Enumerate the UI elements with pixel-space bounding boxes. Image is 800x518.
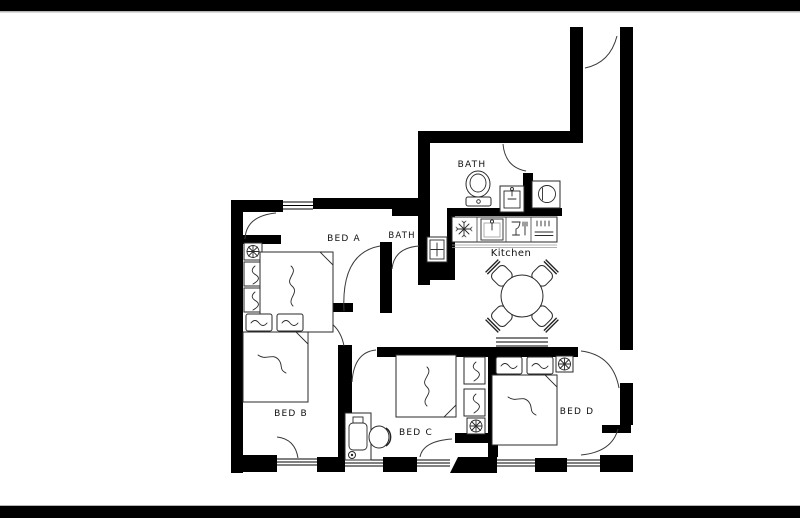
bed-d-room [492, 356, 573, 445]
washing-machine-icon [532, 181, 560, 208]
wall [383, 457, 417, 472]
ceiling-light-icon [244, 243, 262, 260]
bath-inner-label: BATH [388, 231, 415, 241]
wall [317, 457, 345, 472]
nightstand-lamp-icon [464, 389, 485, 416]
wall [418, 262, 455, 280]
bed-d-label: BED D [560, 407, 595, 417]
bottom-letterbox-bar [0, 506, 800, 518]
pillow-icon [496, 357, 522, 374]
wall [450, 457, 497, 473]
dining-table-icon [501, 275, 543, 317]
double-bed-icon [492, 375, 557, 445]
wall [600, 455, 633, 472]
bed-b-exterior-door-arc [277, 437, 298, 458]
washbasin-icon [427, 237, 447, 262]
bath-inner [427, 237, 447, 262]
window [567, 460, 600, 466]
nightstand-lamp-icon [464, 357, 485, 384]
wall [570, 27, 583, 131]
window [345, 460, 383, 466]
bed-d-door-arc [581, 351, 619, 388]
double-bed-icon [243, 332, 308, 402]
washbasin-icon [500, 186, 524, 212]
ceiling-light-icon [467, 418, 485, 434]
wall [602, 425, 631, 433]
wall [231, 455, 277, 472]
bath-main-label: BATH [458, 160, 487, 170]
bottom-bar-edge [0, 505, 800, 506]
floor-plan-drawing: BED A BED B BED C BED D BATH BATH Kitche… [0, 0, 800, 518]
bed-c-exterior-door-arc [420, 439, 452, 457]
bed-b-label: BED B [274, 409, 308, 419]
kitchen [452, 217, 558, 332]
wall [380, 242, 392, 313]
kitchen-sink-icon [481, 219, 503, 240]
wall [620, 27, 633, 350]
top-letterbox-bar [0, 0, 800, 11]
entry-door-arc [585, 36, 617, 68]
wall [392, 207, 428, 216]
bed-c-label: BED C [399, 428, 433, 438]
bed-a-door-arc [344, 246, 380, 311]
bath-main [466, 171, 560, 212]
ceiling-light-icon [556, 356, 573, 372]
window [497, 460, 535, 466]
window [277, 459, 317, 465]
top-bar-edge [0, 11, 800, 13]
wall [418, 131, 583, 143]
desk-chair-icon [369, 426, 391, 448]
wall [535, 458, 567, 472]
wall [620, 383, 633, 425]
pillow-icon [277, 314, 303, 331]
floor-lamp-icon [349, 452, 356, 459]
pass-through-window [496, 338, 548, 346]
bed-c-door-arc [352, 350, 376, 382]
wall [231, 200, 243, 473]
double-bed-icon [396, 355, 456, 417]
window [417, 460, 450, 466]
bath-main-door-arc [503, 144, 526, 171]
floor-plan-canvas: BED A BED B BED C BED D BATH BATH Kitche… [0, 0, 800, 518]
wall [231, 200, 283, 212]
window [283, 202, 313, 209]
bed-c-room [345, 355, 485, 460]
toilet-icon [466, 171, 491, 206]
bath-inner-door-arc [392, 246, 419, 269]
kitchen-label: Kitchen [491, 248, 531, 259]
bed-a-label: BED A [327, 234, 361, 244]
pillow-icon [246, 314, 272, 331]
kitchen-counter [452, 217, 557, 248]
dining-set [486, 260, 559, 333]
pillow-icon [527, 357, 553, 374]
